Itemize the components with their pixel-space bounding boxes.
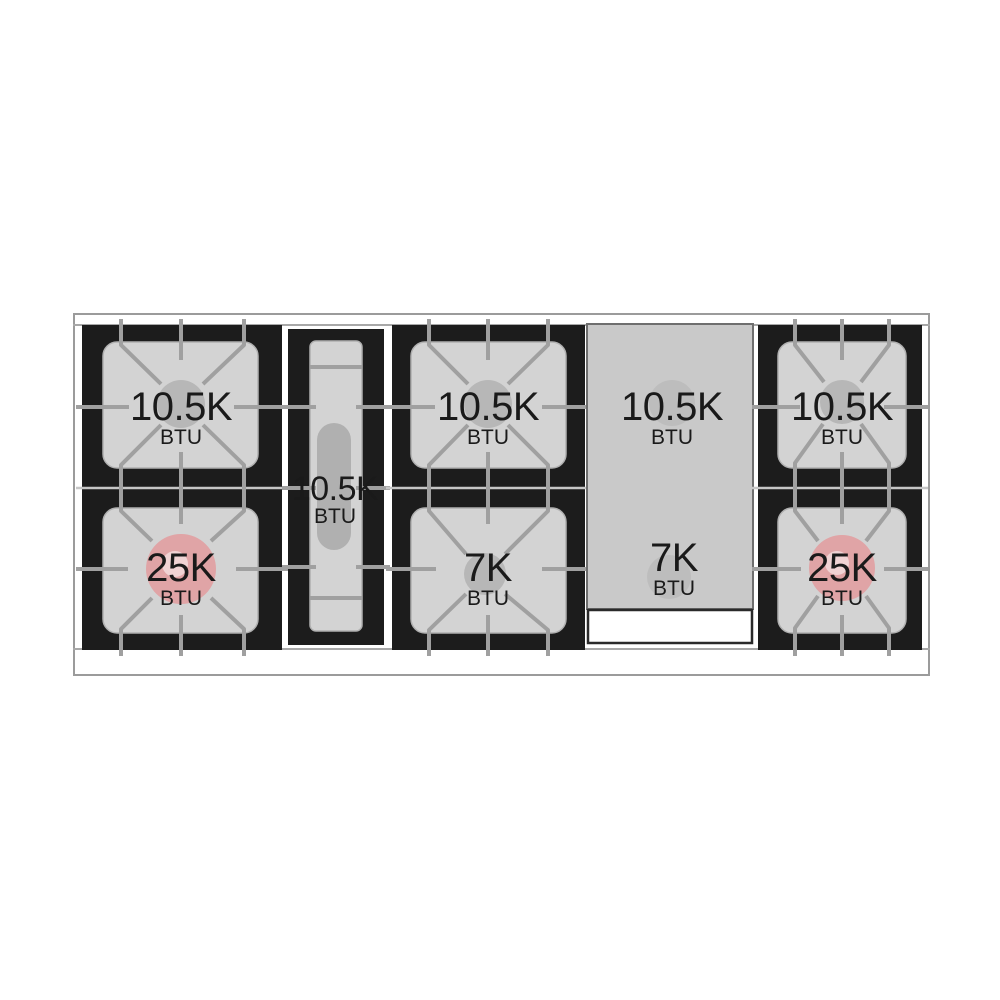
- btu-value: 25K: [807, 548, 877, 588]
- burner-rating-griddle-bottom: 7K BTU: [650, 538, 698, 600]
- cooktop-diagram: 10.5K BTU 25K BTU 10.5K BTU 10.5K BTU 7K…: [0, 0, 1000, 1000]
- btu-value: 7K: [650, 538, 698, 578]
- burner-rating-right-bottom: 25K BTU: [807, 548, 877, 610]
- btu-value: 7K: [464, 548, 512, 588]
- btu-value: 10.5K: [791, 387, 893, 427]
- btu-value: 10.5K: [130, 387, 232, 427]
- btu-unit: BTU: [146, 588, 216, 610]
- btu-value: 10.5K: [437, 387, 539, 427]
- btu-value: 10.5K: [292, 472, 378, 506]
- burner-rating-middle-bottom: 7K BTU: [464, 548, 512, 610]
- btu-unit: BTU: [437, 427, 539, 449]
- burner-rating-center-oval: 10.5K BTU: [292, 472, 378, 528]
- btu-unit: BTU: [621, 427, 723, 449]
- cooktop-graphic: [0, 0, 1000, 1000]
- burner-rating-left-top: 10.5K BTU: [130, 387, 232, 449]
- btu-value: 25K: [146, 548, 216, 588]
- btu-value: 10.5K: [621, 387, 723, 427]
- btu-unit: BTU: [650, 578, 698, 600]
- btu-unit: BTU: [464, 588, 512, 610]
- btu-unit: BTU: [130, 427, 232, 449]
- burner-rating-griddle-top: 10.5K BTU: [621, 387, 723, 449]
- burner-rating-right-top: 10.5K BTU: [791, 387, 893, 449]
- btu-unit: BTU: [807, 588, 877, 610]
- griddle-tray: [588, 610, 752, 643]
- burner-rating-middle-top: 10.5K BTU: [437, 387, 539, 449]
- btu-unit: BTU: [292, 506, 378, 528]
- burner-rating-left-bottom: 25K BTU: [146, 548, 216, 610]
- btu-unit: BTU: [791, 427, 893, 449]
